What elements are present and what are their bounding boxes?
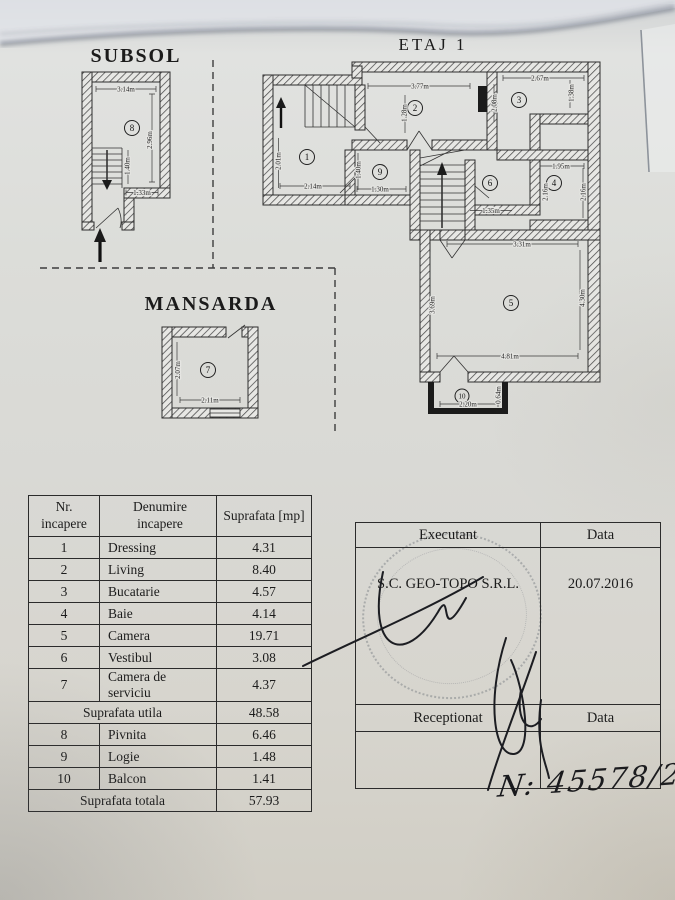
receptionat-data-label: Data	[541, 705, 661, 732]
svg-text:6: 6	[488, 178, 493, 188]
executant-header-row: Executant Data	[356, 523, 661, 548]
svg-text:2.11m: 2.11m	[201, 397, 219, 405]
svg-text:4.30m: 4.30m	[579, 289, 587, 307]
table-row: 1Dressing4.31	[29, 537, 312, 559]
room-number-8: 8	[130, 123, 135, 133]
svg-text:2.67m: 2.67m	[531, 75, 549, 83]
floorplan-drawing: SUBSOL 8	[0, 0, 675, 470]
subsol-entrance-arrow	[94, 228, 106, 262]
receptionat-label: Receptionat	[356, 705, 541, 732]
mansarda-window	[210, 409, 240, 417]
signoff-table: Executant Data S.C. GEO-TOPO S.R.L. 20.0…	[355, 522, 661, 789]
svg-text:9: 9	[378, 167, 383, 177]
room-area-table: Nr. incapere Denumire incapere Suprafata…	[28, 495, 312, 812]
svg-text:1.28m: 1.28m	[401, 104, 409, 122]
etaj1-upper-stairs	[305, 85, 355, 127]
svg-text:3.69m: 3.69m	[429, 296, 437, 314]
svg-text:1.95m: 1.95m	[552, 163, 570, 171]
table-row: 10Balcon1.41	[29, 768, 312, 790]
plan-title-mansarda: MANSARDA	[145, 293, 278, 315]
svg-text:4.81m: 4.81m	[501, 353, 519, 361]
plan-mansarda: MANSARDA 7 2.11m 2.07m	[145, 293, 278, 418]
executant-date: 20.07.2016	[541, 548, 661, 705]
scanned-floorplan-document: SUBSOL 8	[0, 0, 675, 900]
suprafata-utila-value: 48.58	[217, 702, 312, 724]
executant-data-label: Data	[541, 523, 661, 548]
svg-text:1: 1	[305, 152, 310, 162]
executant-label: Executant	[356, 523, 541, 548]
plan-subsol: SUBSOL 8	[82, 45, 181, 262]
plan-etaj1: ETAJ 1	[263, 35, 600, 414]
etaj1-dimensions: 3.77m 1.28m 2.67m 1.38m 2.08m 2.14m 2.01…	[275, 75, 588, 409]
table-row: 8Pivnita6.46	[29, 724, 312, 746]
svg-text:1.40m: 1.40m	[355, 161, 363, 179]
svg-text:1.33m: 1.33m	[133, 189, 151, 197]
svg-text:2.14m: 2.14m	[304, 183, 322, 191]
chimney	[478, 86, 487, 112]
table-row: 5Camera19.71	[29, 625, 312, 647]
plan-title-etaj1: ETAJ 1	[398, 35, 467, 54]
svg-text:2: 2	[413, 103, 418, 113]
svg-text:3.31m: 3.31m	[513, 241, 531, 249]
svg-text:2.01m: 2.01m	[275, 152, 283, 170]
header-nr-incapere: Nr. incapere	[29, 496, 100, 537]
svg-text:10: 10	[459, 393, 467, 401]
svg-text:2.20m: 2.20m	[459, 401, 477, 409]
executant-value-row: S.C. GEO-TOPO S.R.L. 20.07.2016	[356, 548, 661, 705]
svg-text:3.77m: 3.77m	[411, 83, 429, 91]
table-row: 3Bucatarie4.57	[29, 581, 312, 603]
etaj1-stairwell	[420, 150, 465, 228]
svg-text:2.96m: 2.96m	[146, 131, 154, 149]
svg-text:4: 4	[552, 178, 557, 188]
subsol-stairs	[92, 148, 122, 190]
svg-text:1.35m: 1.35m	[482, 207, 500, 215]
header-suprafata: Suprafata [mp]	[217, 496, 312, 537]
svg-text:1.40m: 1.40m	[124, 157, 132, 175]
table-header-row: Nr. incapere Denumire incapere Suprafata…	[29, 496, 312, 537]
suprafata-utila-label: Suprafata utila	[29, 702, 217, 724]
table-row: 7Camera de serviciu4.37	[29, 669, 312, 702]
table-row: 2Living8.40	[29, 559, 312, 581]
suprafata-totala-label: Suprafata totala	[29, 790, 217, 812]
svg-text:0.64m: 0.64m	[495, 386, 503, 404]
svg-text:2.16m: 2.16m	[580, 183, 588, 201]
svg-text:1.38m: 1.38m	[568, 84, 576, 102]
svg-text:2.08m: 2.08m	[491, 94, 499, 112]
etaj1-entry-arrow	[276, 97, 286, 128]
table-row: 9Logie1.48	[29, 746, 312, 768]
total-row: Suprafata totala57.93	[29, 790, 312, 812]
table-row: 6Vestibul3.08	[29, 647, 312, 669]
plan-title-subsol: SUBSOL	[91, 45, 182, 67]
svg-text:1.30m: 1.30m	[371, 186, 389, 194]
suprafata-totala-value: 57.93	[217, 790, 312, 812]
svg-text:3.14m: 3.14m	[117, 86, 135, 94]
receptionat-header-row: Receptionat Data	[356, 705, 661, 732]
room-number-7: 7	[206, 365, 211, 375]
svg-text:2.07m: 2.07m	[174, 361, 182, 379]
header-denumire: Denumire incapere	[100, 496, 217, 537]
subtotal-row: Suprafata utila48.58	[29, 702, 312, 724]
subsol-door-swing	[96, 208, 121, 228]
executant-company: S.C. GEO-TOPO S.R.L.	[356, 548, 541, 705]
table-row: 4Baie4.14	[29, 603, 312, 625]
svg-text:3: 3	[517, 95, 522, 105]
svg-text:2.16m: 2.16m	[542, 183, 550, 201]
svg-text:5: 5	[509, 298, 514, 308]
